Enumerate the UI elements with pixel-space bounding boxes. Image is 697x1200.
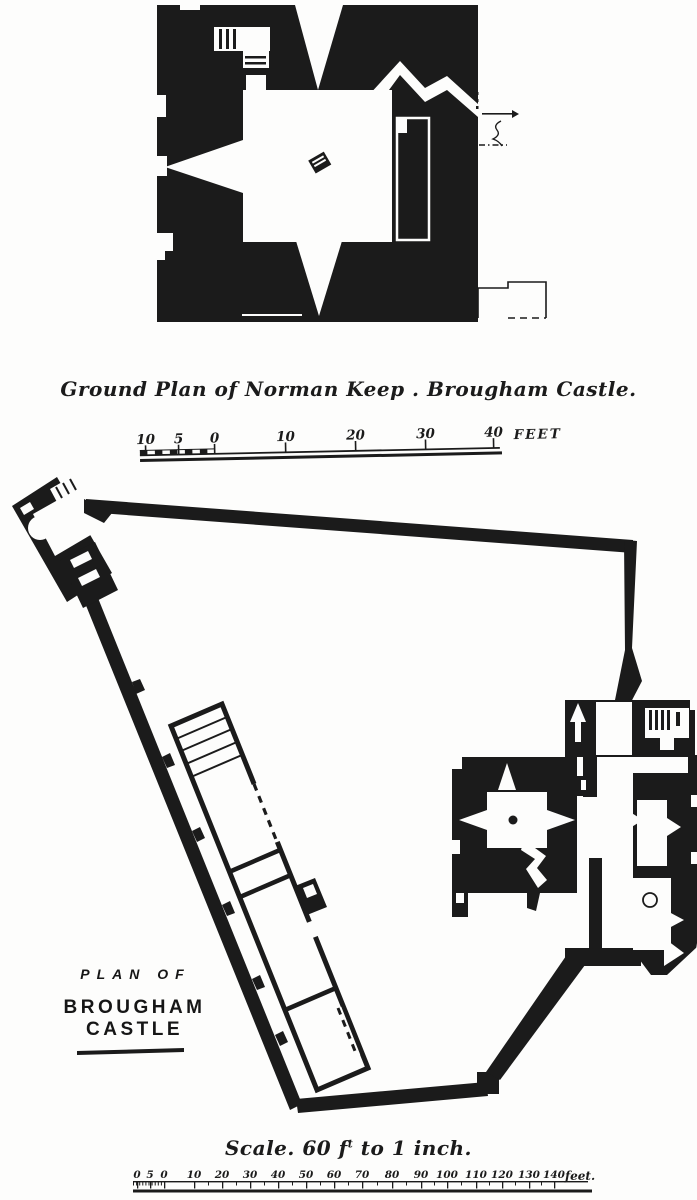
castle-scale-label: 90 (414, 1169, 429, 1181)
north-curtain-wall (86, 499, 633, 553)
keep-scale-label: 30 (416, 426, 436, 442)
castle-scale-label: 120 (491, 1169, 514, 1181)
castle-plan-title-line1: PLAN OF (38, 966, 233, 982)
keep-forebuilding-outline (478, 282, 546, 318)
keep-scale-label: 20 (345, 427, 366, 443)
engraving-page: 10 5 0 10 20 30 40 FEET (0, 0, 697, 1200)
keep-scale-label: 10 (136, 432, 156, 448)
castle-scale-caption-prefix: Scale. 60 f (225, 1136, 348, 1160)
southeast-curtain-wall (486, 956, 585, 1080)
keep-scale-label: 5 (174, 431, 184, 447)
keep-scale-label: 0 (210, 430, 220, 446)
castle-scale-bar: 0 5 0 10 20 30 40 50 60 70 80 90 100 110… (133, 1169, 595, 1193)
castle-scale-label: 110 (465, 1169, 488, 1181)
castle-scale-label: 80 (385, 1169, 400, 1181)
castle-scale-label: 5 (146, 1169, 153, 1181)
arrow-mark-icon (512, 110, 519, 118)
keep-scale-unit: FEET (512, 426, 562, 443)
east-room-a (637, 800, 667, 866)
castle-scale-label: 130 (518, 1169, 541, 1181)
castle-scale-label: 0 (160, 1169, 168, 1181)
keep-scale-label: 10 (276, 429, 296, 445)
castle-plan-title-line2: BROUGHAM CASTLE (12, 997, 257, 1041)
castle-scale-label: 30 (243, 1169, 258, 1181)
castle-scale-label: 50 (299, 1169, 314, 1181)
keep-stair-chamber (214, 27, 270, 51)
castle-scale-label: 140 (543, 1169, 566, 1181)
brace-mark-icon (493, 121, 502, 146)
east-curtain-wall (615, 540, 642, 706)
castle-scale-label: 70 (355, 1169, 370, 1181)
castle-scale-label: 40 (271, 1169, 286, 1181)
keep-scale-label: 40 (484, 424, 504, 440)
title-rule (77, 1048, 184, 1055)
castle-scale-unit: feet. (564, 1169, 595, 1183)
keep-plan-caption: Ground Plan of Norman Keep . Brougham Ca… (0, 377, 697, 401)
castle-scale-caption-suffix: to 1 inch. (353, 1136, 472, 1160)
castle-scale-caption: Scale. 60 ft to 1 inch. (0, 1136, 697, 1160)
castle-scale-label: 20 (214, 1169, 230, 1181)
keep-plan-drawing (157, 5, 546, 322)
castle-scale-label: 10 (187, 1169, 202, 1181)
east-passage (596, 702, 632, 755)
courtyard-wall (589, 858, 602, 960)
castle-scale-label: 0 (133, 1169, 141, 1181)
keep-scale-bar: 10 5 0 10 20 30 40 FEET (136, 423, 562, 462)
castle-scale-label: 100 (436, 1169, 459, 1181)
castle-scale-label: 60 (327, 1169, 342, 1181)
keep-small-pier (509, 816, 518, 825)
keep-east-mural-chamber (397, 118, 429, 240)
